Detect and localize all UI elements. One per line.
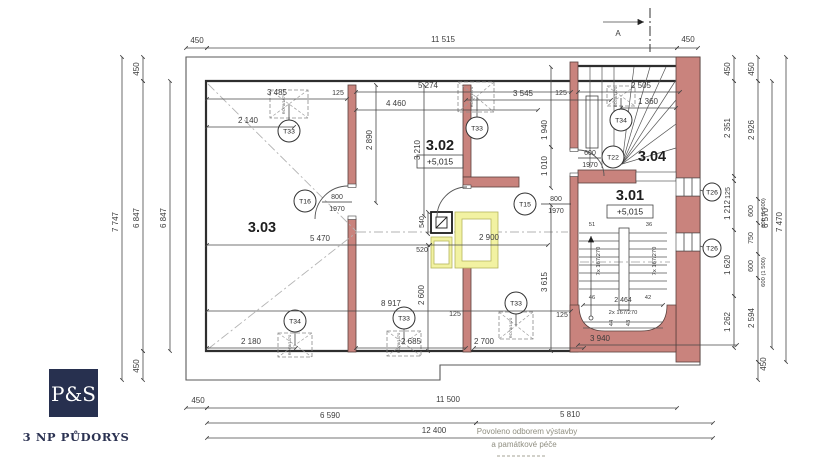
element-tags: T33 T33 T34 T16 T15 T22 T34 T33 T33 T26 … [278, 109, 721, 332]
title-block: P&S 3 NP PŮDORYS [23, 369, 130, 444]
svg-text:125: 125 [556, 312, 568, 319]
tag-t34: T34 [615, 118, 627, 125]
tag-t16: T16 [299, 199, 311, 206]
drawing-title: 3 NP PŮDORYS [23, 430, 130, 444]
stair-treads-right [629, 233, 667, 289]
room-303: 3.03 [248, 220, 276, 236]
svg-text:1 262: 1 262 [723, 311, 732, 332]
stair-step-51: 51 [589, 222, 595, 228]
svg-text:1970: 1970 [582, 162, 598, 169]
tag-t22: T22 [607, 155, 619, 162]
stair-step-36: 36 [646, 222, 652, 228]
svg-text:125: 125 [332, 90, 344, 97]
svg-text:2 700: 2 700 [474, 337, 495, 346]
svg-text:3 615: 3 615 [540, 271, 549, 292]
stair-run-landing: 2x 167/270 [609, 310, 638, 316]
room-302-level: +5,015 [427, 157, 454, 167]
svg-text:6 847: 6 847 [132, 207, 141, 228]
wall-303-302-upper [348, 85, 356, 186]
svg-text:12 400: 12 400 [422, 426, 447, 435]
svg-text:800: 800 [331, 194, 343, 201]
svg-text:RO78/1470: RO78/1470 [287, 334, 292, 355]
door-spec-t16: 800 1970 [322, 194, 352, 213]
svg-text:800: 800 [550, 196, 562, 203]
svg-text:1970: 1970 [548, 208, 564, 215]
window-t26-upper [676, 178, 700, 196]
dimensions-interior: 3 485 125 2 140 5 274 4 460 3 545 125 2 … [207, 67, 737, 351]
roof-window-t34-bottom: RO78/1470 [278, 332, 312, 357]
svg-text:450: 450 [132, 62, 141, 76]
room-301-level: +5,015 [617, 207, 644, 217]
svg-text:5 274: 5 274 [418, 81, 439, 90]
svg-text:600: 600 [584, 150, 596, 157]
svg-text:2 685: 2 685 [401, 337, 422, 346]
svg-text:4 460: 4 460 [386, 99, 407, 108]
svg-text:1970: 1970 [329, 206, 345, 213]
tag-t26: T26 [706, 246, 718, 253]
dimensions-left: 7 747 450 6 847 450 6 847 [111, 57, 170, 380]
svg-text:2 926: 2 926 [747, 119, 756, 140]
tag-t33: T33 [510, 301, 522, 308]
svg-text:2 505: 2 505 [631, 81, 652, 90]
svg-text:2 351: 2 351 [723, 117, 732, 138]
wall-303-302-lower [348, 219, 356, 352]
floor-plan-drawing: 51 36 46 42 44 43 7x 167/270 7x 167/270 … [0, 0, 832, 468]
svg-text:2 890: 2 890 [365, 129, 374, 150]
svg-text:3 545: 3 545 [513, 89, 534, 98]
stair-run-right: 7x 167/270 [652, 247, 658, 276]
svg-text:3 940: 3 940 [590, 334, 611, 343]
svg-text:11 500: 11 500 [436, 395, 460, 404]
svg-text:2 594: 2 594 [747, 307, 756, 328]
window-t26-lower [676, 233, 700, 251]
svg-text:3 485: 3 485 [267, 88, 288, 97]
dimensions-top: 450 11 515 450 [186, 35, 698, 48]
svg-text:7 470: 7 470 [775, 211, 784, 232]
svg-text:600: 600 [748, 205, 755, 217]
svg-text:8 917: 8 917 [381, 299, 402, 308]
svg-text:540: 540 [419, 216, 426, 228]
door-spec-t15: 800 1970 [541, 196, 571, 215]
svg-text:11 515: 11 515 [431, 35, 455, 44]
stair-width-dim: 2 464 [614, 297, 632, 304]
svg-text:2 180: 2 180 [241, 337, 262, 346]
svg-text:450: 450 [190, 36, 204, 45]
wall-304-301-divider [578, 170, 636, 183]
section-label: A [615, 29, 621, 38]
svg-text:1 212: 1 212 [723, 199, 732, 220]
tag-t33: T33 [471, 126, 483, 133]
svg-text:125: 125 [449, 311, 461, 318]
floor-plan-page: 51 36 46 42 44 43 7x 167/270 7x 167/270 … [0, 0, 832, 468]
svg-text:6 570: 6 570 [761, 207, 770, 228]
svg-text:750: 750 [748, 232, 755, 244]
right-wall-top [676, 57, 700, 178]
tag-t34: T34 [289, 319, 301, 326]
svg-text:RO78/1470: RO78/1470 [469, 86, 474, 107]
svg-text:600: 600 [748, 260, 755, 272]
stair-step-44: 44 [609, 319, 615, 326]
stair-step-43: 43 [626, 320, 632, 326]
dimensions-bottom: 450 11 500 6 590 5 810 12 400 [186, 395, 713, 438]
svg-text:3 210: 3 210 [413, 139, 422, 160]
tag-t33: T33 [283, 129, 295, 136]
svg-text:1 940: 1 940 [540, 119, 549, 140]
dimensions-right: 450 2 351 125 1 212 1 620 1 262 450 2 92… [723, 57, 786, 380]
stair-step-42: 42 [645, 295, 651, 301]
tag-t15: T15 [519, 202, 531, 209]
room-301: 3.01 [616, 188, 644, 204]
stamp-line2: a památkové péče [491, 440, 557, 449]
staircase-main: 51 36 46 42 44 43 7x 167/270 7x 167/270 … [579, 222, 667, 328]
tag-t26: T26 [706, 190, 718, 197]
svg-text:7 747: 7 747 [111, 211, 120, 232]
stair-step-46: 46 [589, 295, 595, 301]
tag-t33: T33 [398, 316, 410, 323]
svg-text:125: 125 [555, 90, 567, 97]
svg-text:1 360: 1 360 [638, 97, 659, 106]
logo-brand: P&S [51, 382, 96, 406]
svg-text:125: 125 [725, 187, 732, 199]
svg-text:2 900: 2 900 [479, 233, 500, 242]
svg-text:6 590: 6 590 [320, 411, 341, 420]
svg-text:450: 450 [759, 357, 768, 371]
svg-text:520: 520 [416, 247, 428, 254]
niche [636, 172, 676, 181]
svg-text:450: 450 [132, 359, 141, 373]
svg-text:5 470: 5 470 [310, 234, 331, 243]
stair-run-left: 7x 167/270 [596, 247, 602, 276]
approval-stamp: Povoleno odborem výstavby a památkové pé… [477, 427, 578, 456]
section-marker: A [603, 8, 650, 52]
door-t16-swing [315, 186, 348, 219]
svg-text:450: 450 [191, 396, 205, 405]
svg-text:RO78/1470: RO78/1470 [508, 317, 513, 338]
svg-text:450: 450 [747, 62, 756, 76]
svg-text:5 810: 5 810 [560, 410, 581, 419]
wall-304-left [570, 62, 578, 150]
svg-text:600 (1 500): 600 (1 500) [761, 257, 767, 287]
svg-text:RO78/1470: RO78/1470 [613, 86, 618, 107]
svg-text:2 600: 2 600 [417, 284, 426, 305]
corridor-divider-wall [463, 177, 519, 187]
svg-text:450: 450 [681, 35, 695, 44]
stair-handrail [586, 96, 598, 148]
room-304: 3.04 [638, 149, 666, 165]
svg-text:1 010: 1 010 [540, 155, 549, 176]
roof-window-t33-bottom2: RO78/1470 [499, 312, 533, 339]
svg-text:6 847: 6 847 [159, 207, 168, 228]
svg-text:450: 450 [723, 62, 732, 76]
svg-text:2 140: 2 140 [238, 116, 259, 125]
svg-text:1 620: 1 620 [723, 254, 732, 275]
room-302: 3.02 [426, 138, 454, 154]
right-wall-mid [676, 196, 700, 233]
stamp-line1: Povoleno odborem výstavby [477, 427, 578, 436]
